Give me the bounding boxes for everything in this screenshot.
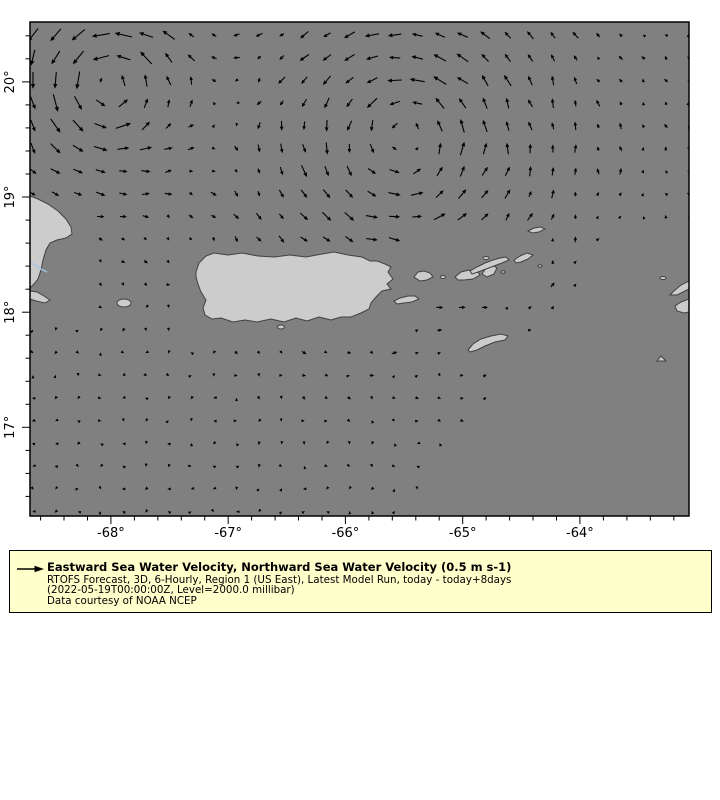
x-axis-label: -68°	[97, 526, 125, 541]
y-axis	[22, 36, 30, 497]
y-axis-label: 17°	[3, 416, 18, 439]
figure: -68°-67°-66°-65°-64°17°18°19°20° Eastwar…	[0, 0, 720, 800]
legend-title: Eastward Sea Water Velocity, Northward S…	[47, 560, 511, 574]
dog-islands	[660, 277, 666, 280]
y-axis-labels: 17°18°19°20°	[3, 70, 18, 438]
puerto-rico	[196, 252, 393, 322]
x-axis-label: -65°	[449, 526, 477, 541]
jost-van-dyke	[483, 257, 489, 260]
x-axis-labels: -68°-67°-66°-65°-64°	[97, 526, 594, 541]
x-axis-label: -64°	[566, 526, 594, 541]
y-axis-label: 20°	[3, 70, 18, 93]
islet-a	[501, 271, 505, 273]
x-axis	[41, 516, 674, 524]
legend-box: Eastward Sea Water Velocity, Northward S…	[9, 550, 712, 613]
y-axis-label: 19°	[3, 185, 18, 208]
mona-island	[117, 299, 131, 307]
y-axis-label: 18°	[3, 301, 18, 324]
culebrita	[441, 276, 446, 279]
x-axis-label: -67°	[214, 526, 242, 541]
legend-credit: Data courtesy of NOAA NCEP	[47, 595, 197, 607]
velocity-map: -68°-67°-66°-65°-64°17°18°19°20°	[0, 0, 720, 548]
islet-b	[538, 265, 542, 267]
caja-de-muertos	[278, 325, 285, 329]
x-axis-label: -66°	[332, 526, 360, 541]
